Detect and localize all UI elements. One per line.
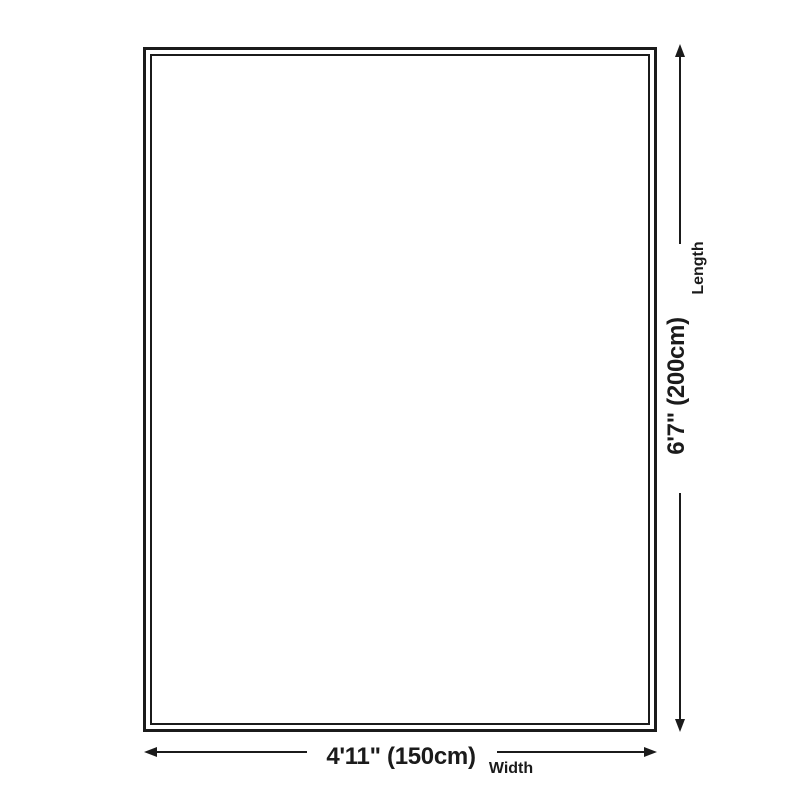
arrow-right-icon [644,747,657,757]
length-label: Length [690,241,708,294]
width-dimension-line-right [497,751,647,753]
product-dimension-diagram: Length 6'7" (200cm) 4'11" (150cm) Width [0,0,800,800]
width-dimension-line-left [155,751,307,753]
rug-inner-outline [150,54,650,725]
arrow-down-icon [675,719,685,732]
length-dimension-line-bottom [679,493,681,722]
width-label: Width [489,760,533,778]
rug-outline [143,47,657,732]
length-dimension-line-top [679,54,681,244]
length-value: 6'7" (200cm) [663,317,691,455]
width-value: 4'11" (150cm) [326,743,475,771]
